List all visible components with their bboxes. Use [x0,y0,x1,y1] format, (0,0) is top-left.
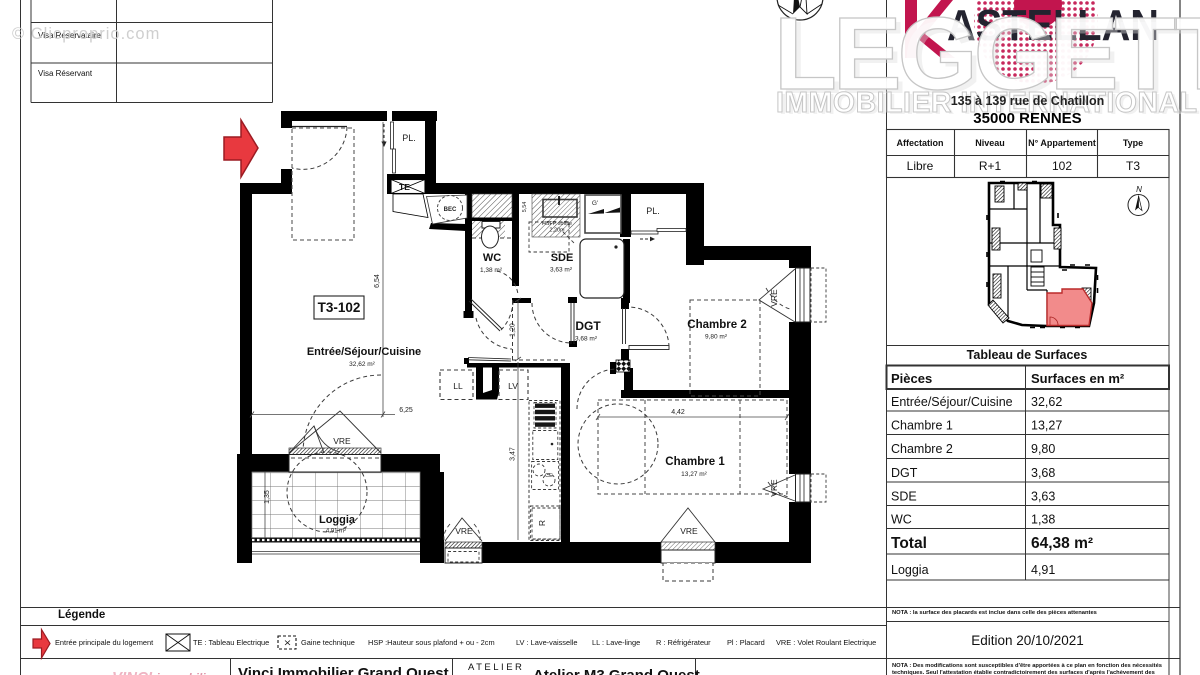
svg-text:R+1: R+1 [979,159,1002,173]
svg-text:Tableau de Surfaces: Tableau de Surfaces [967,348,1088,362]
svg-text:64,38 m²: 64,38 m² [1031,535,1093,552]
svg-text:Libre: Libre [907,159,934,173]
svg-text:Niveau: Niveau [975,138,1005,148]
svg-text:Surfaces en m²: Surfaces en m² [1031,371,1125,386]
svg-text:102: 102 [1052,159,1072,173]
svg-text:9,80: 9,80 [1031,442,1055,456]
svg-text:DGT: DGT [891,466,918,480]
svg-text:13,27: 13,27 [1031,419,1062,433]
svg-text:WC: WC [891,513,912,527]
svg-text:3,63: 3,63 [1031,490,1055,504]
svg-text:N° Appartement: N° Appartement [1028,138,1096,148]
svg-text:Entrée/Séjour/Cuisine: Entrée/Séjour/Cuisine [891,395,1013,409]
svg-text:Chambre 2: Chambre 2 [891,442,953,456]
svg-text:Total: Total [891,535,927,552]
svg-text:Pièces: Pièces [891,371,932,386]
svg-text:SDE: SDE [891,490,917,504]
svg-text:Chambre 1: Chambre 1 [891,419,953,433]
svg-text:T3: T3 [1126,159,1140,173]
svg-text:4,91: 4,91 [1031,563,1055,577]
svg-text:1,38: 1,38 [1031,513,1055,527]
svg-text:Affectation: Affectation [897,138,944,148]
svg-text:Loggia: Loggia [891,563,929,577]
svg-text:32,62: 32,62 [1031,395,1062,409]
svg-text:Type: Type [1123,138,1143,148]
svg-text:3,68: 3,68 [1031,466,1055,480]
